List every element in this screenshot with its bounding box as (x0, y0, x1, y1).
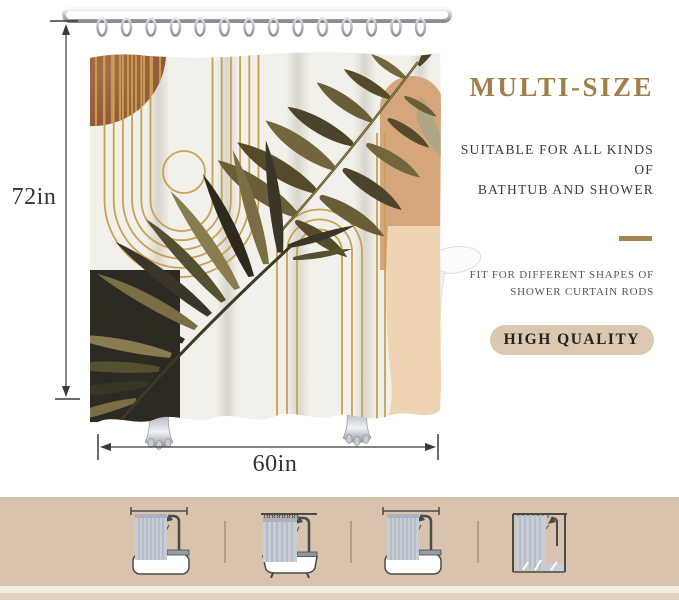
high-quality-badge: HIGH QUALITY (490, 325, 654, 355)
shower-rod (52, 0, 462, 52)
strip-divider (224, 521, 226, 563)
curved-rod-icon (64, 9, 450, 21)
straight-rod-with-shower-over-bathtub-icon (381, 506, 445, 578)
height-label: 72in (6, 184, 62, 211)
strip-bottom-band (0, 593, 679, 600)
straight-rod-over-bathtub-icon (129, 506, 193, 578)
footer-strip (0, 497, 679, 600)
suitable-text: SUITABLE FOR ALL KINDS OF BATHTUB AND SH… (438, 140, 654, 200)
fit-text: FIT FOR DIFFERENT SHAPES OF SHOWER CURTA… (438, 267, 654, 301)
marketing-panel: MULTI-SIZE SUITABLE FOR ALL KINDS OF BAT… (438, 70, 654, 355)
width-label: 60in (200, 451, 350, 478)
curved-rod-over-clawfoot-tub-icon (257, 506, 321, 578)
peach-fold-shape (385, 226, 446, 428)
headline-multi-size: MULTI-SIZE (438, 70, 654, 104)
shower-curtain-artwork (88, 48, 488, 452)
shower-stall-frame-icon (509, 506, 573, 578)
strip-divider (350, 521, 352, 563)
strip-divider (477, 521, 479, 563)
product-image: 72in 60in MULTI-SIZE SUITABLE FOR ALL KI… (0, 0, 679, 600)
gold-divider-bar (619, 236, 652, 241)
strip-light-band (0, 586, 679, 593)
